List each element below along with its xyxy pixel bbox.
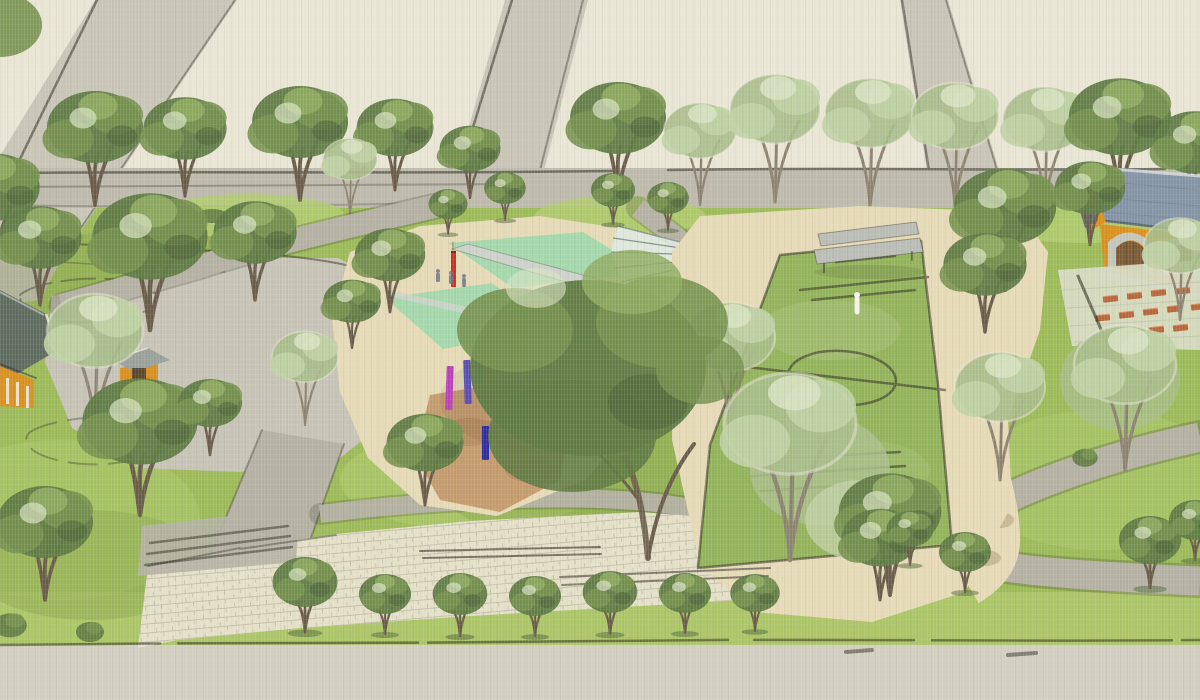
pole-blue bbox=[482, 426, 489, 460]
park-rendering bbox=[0, 0, 1200, 700]
bush bbox=[1072, 449, 1097, 467]
bush bbox=[76, 622, 104, 642]
park-rendering-canvas bbox=[0, 0, 1200, 700]
player-figure bbox=[854, 292, 860, 312]
